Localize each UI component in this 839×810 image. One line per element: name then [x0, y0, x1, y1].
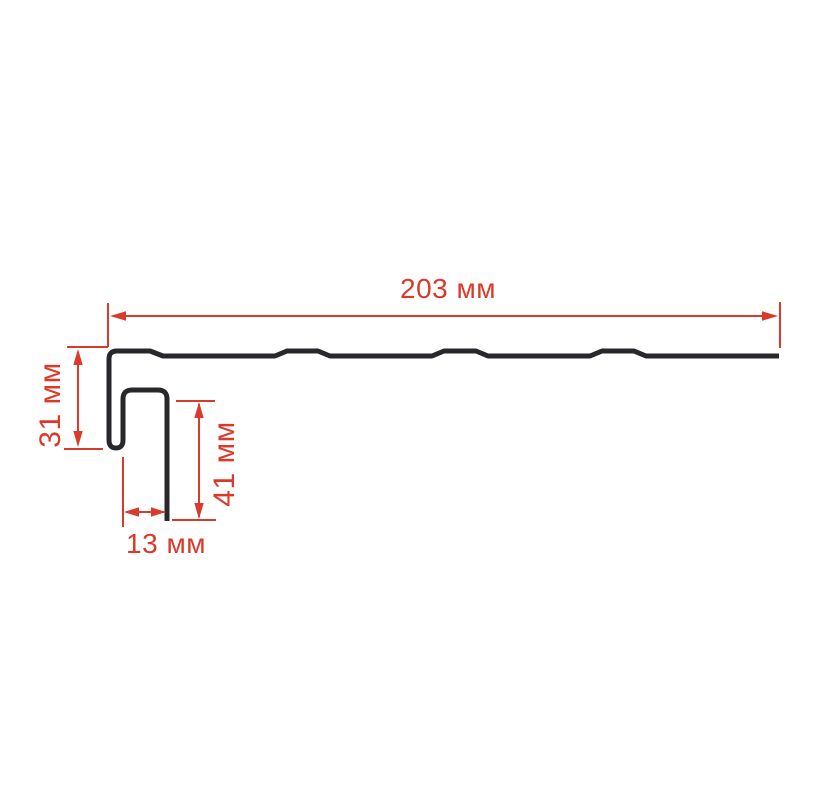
arrowhead-left-icon: [124, 507, 139, 516]
dimension-label-left-height: 31 мм: [36, 362, 66, 447]
page: { "page": { "background_color": "#ffffff…: [0, 0, 839, 810]
arrowhead-right-icon: [762, 311, 778, 320]
arrowhead-up-icon: [73, 349, 82, 365]
technical-drawing-canvas: 203 мм 31 мм 41 мм 13 мм: [0, 0, 839, 810]
dimension-bottom-width: [123, 457, 166, 527]
arrowhead-down-icon: [194, 503, 203, 519]
arrowhead-right-icon: [151, 507, 166, 516]
dimension-left-height: [64, 347, 108, 449]
dimension-label-inner-height: 41 мм: [210, 421, 240, 506]
dimension-label-bottom-width: 13 мм: [126, 530, 206, 558]
arrowhead-up-icon: [194, 402, 203, 418]
arrowhead-down-icon: [73, 431, 82, 447]
dimension-label-top-width: 203 мм: [400, 275, 496, 303]
dimension-top-width: [108, 302, 780, 348]
arrowhead-left-icon: [110, 311, 126, 320]
profile-diagram-svg: [0, 0, 839, 810]
